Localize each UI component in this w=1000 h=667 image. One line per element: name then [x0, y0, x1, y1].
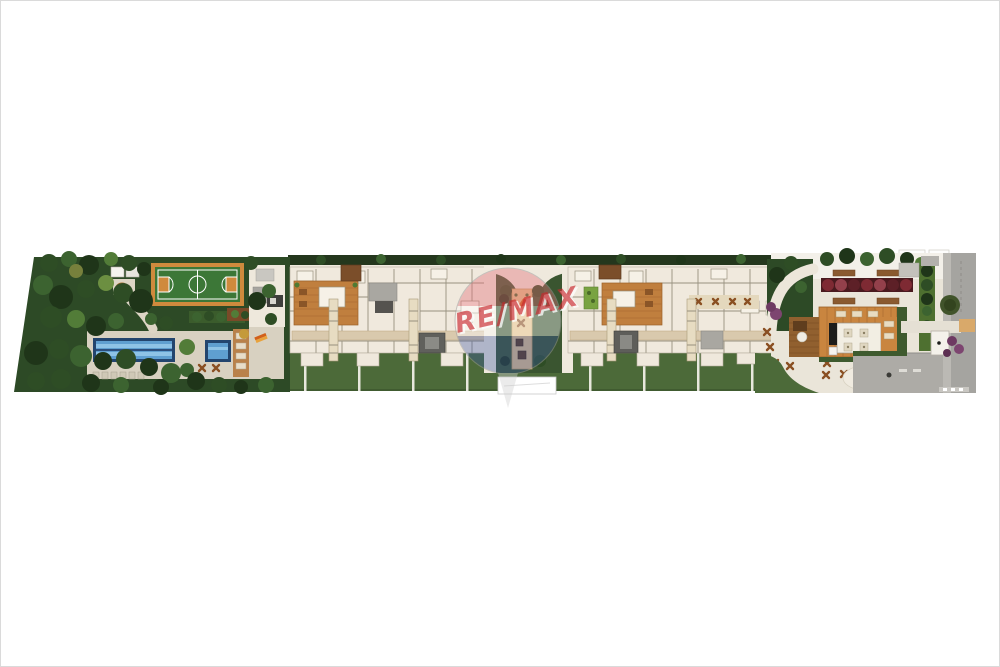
- party-room-interior: [837, 323, 881, 353]
- corridor: [570, 331, 772, 340]
- round-tree: [179, 339, 195, 355]
- amenity-plaza: [755, 248, 976, 393]
- pergola-party-room: [819, 307, 897, 357]
- side-wood-deck: [789, 317, 819, 357]
- site-plan-page: RE/MAX RE/MAX: [0, 0, 1000, 667]
- green-roof-patch: [584, 287, 598, 309]
- roof-block: [341, 265, 361, 281]
- purple-shrub: [947, 336, 957, 346]
- site-plan-illustration: RE/MAX RE/MAX: [1, 1, 1000, 667]
- landscaped-garden: [14, 251, 290, 395]
- rooftop-deck: [294, 281, 358, 325]
- kitchen-counter: [829, 323, 837, 345]
- multisport-court: [151, 263, 244, 306]
- tower-b-floor-plan: [568, 265, 774, 366]
- roof-block: [599, 265, 621, 279]
- entry-mat: [959, 319, 975, 332]
- children-pool: [205, 340, 231, 362]
